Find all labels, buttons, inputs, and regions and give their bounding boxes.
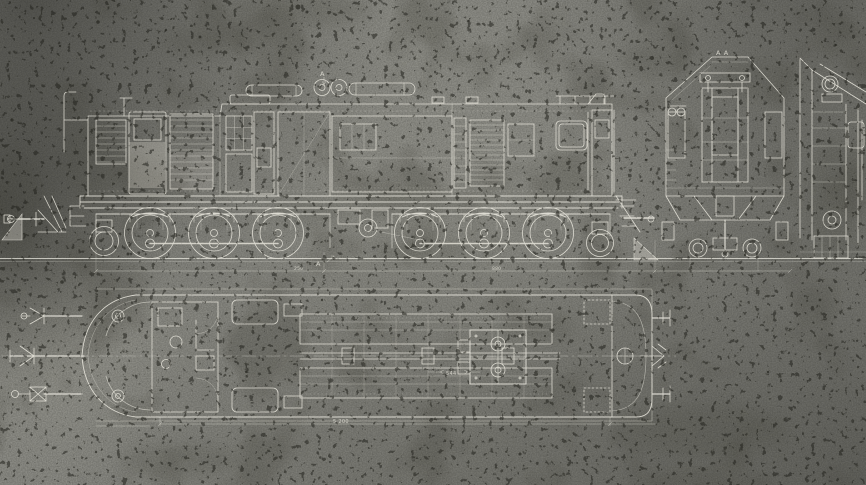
blueprint-etching: A A A A 250 880 544 5,200 — [0, 0, 866, 485]
blueprint-scene: A A A A 250 880 544 5,200 — [0, 0, 866, 485]
coarse-speckle — [0, 0, 866, 485]
